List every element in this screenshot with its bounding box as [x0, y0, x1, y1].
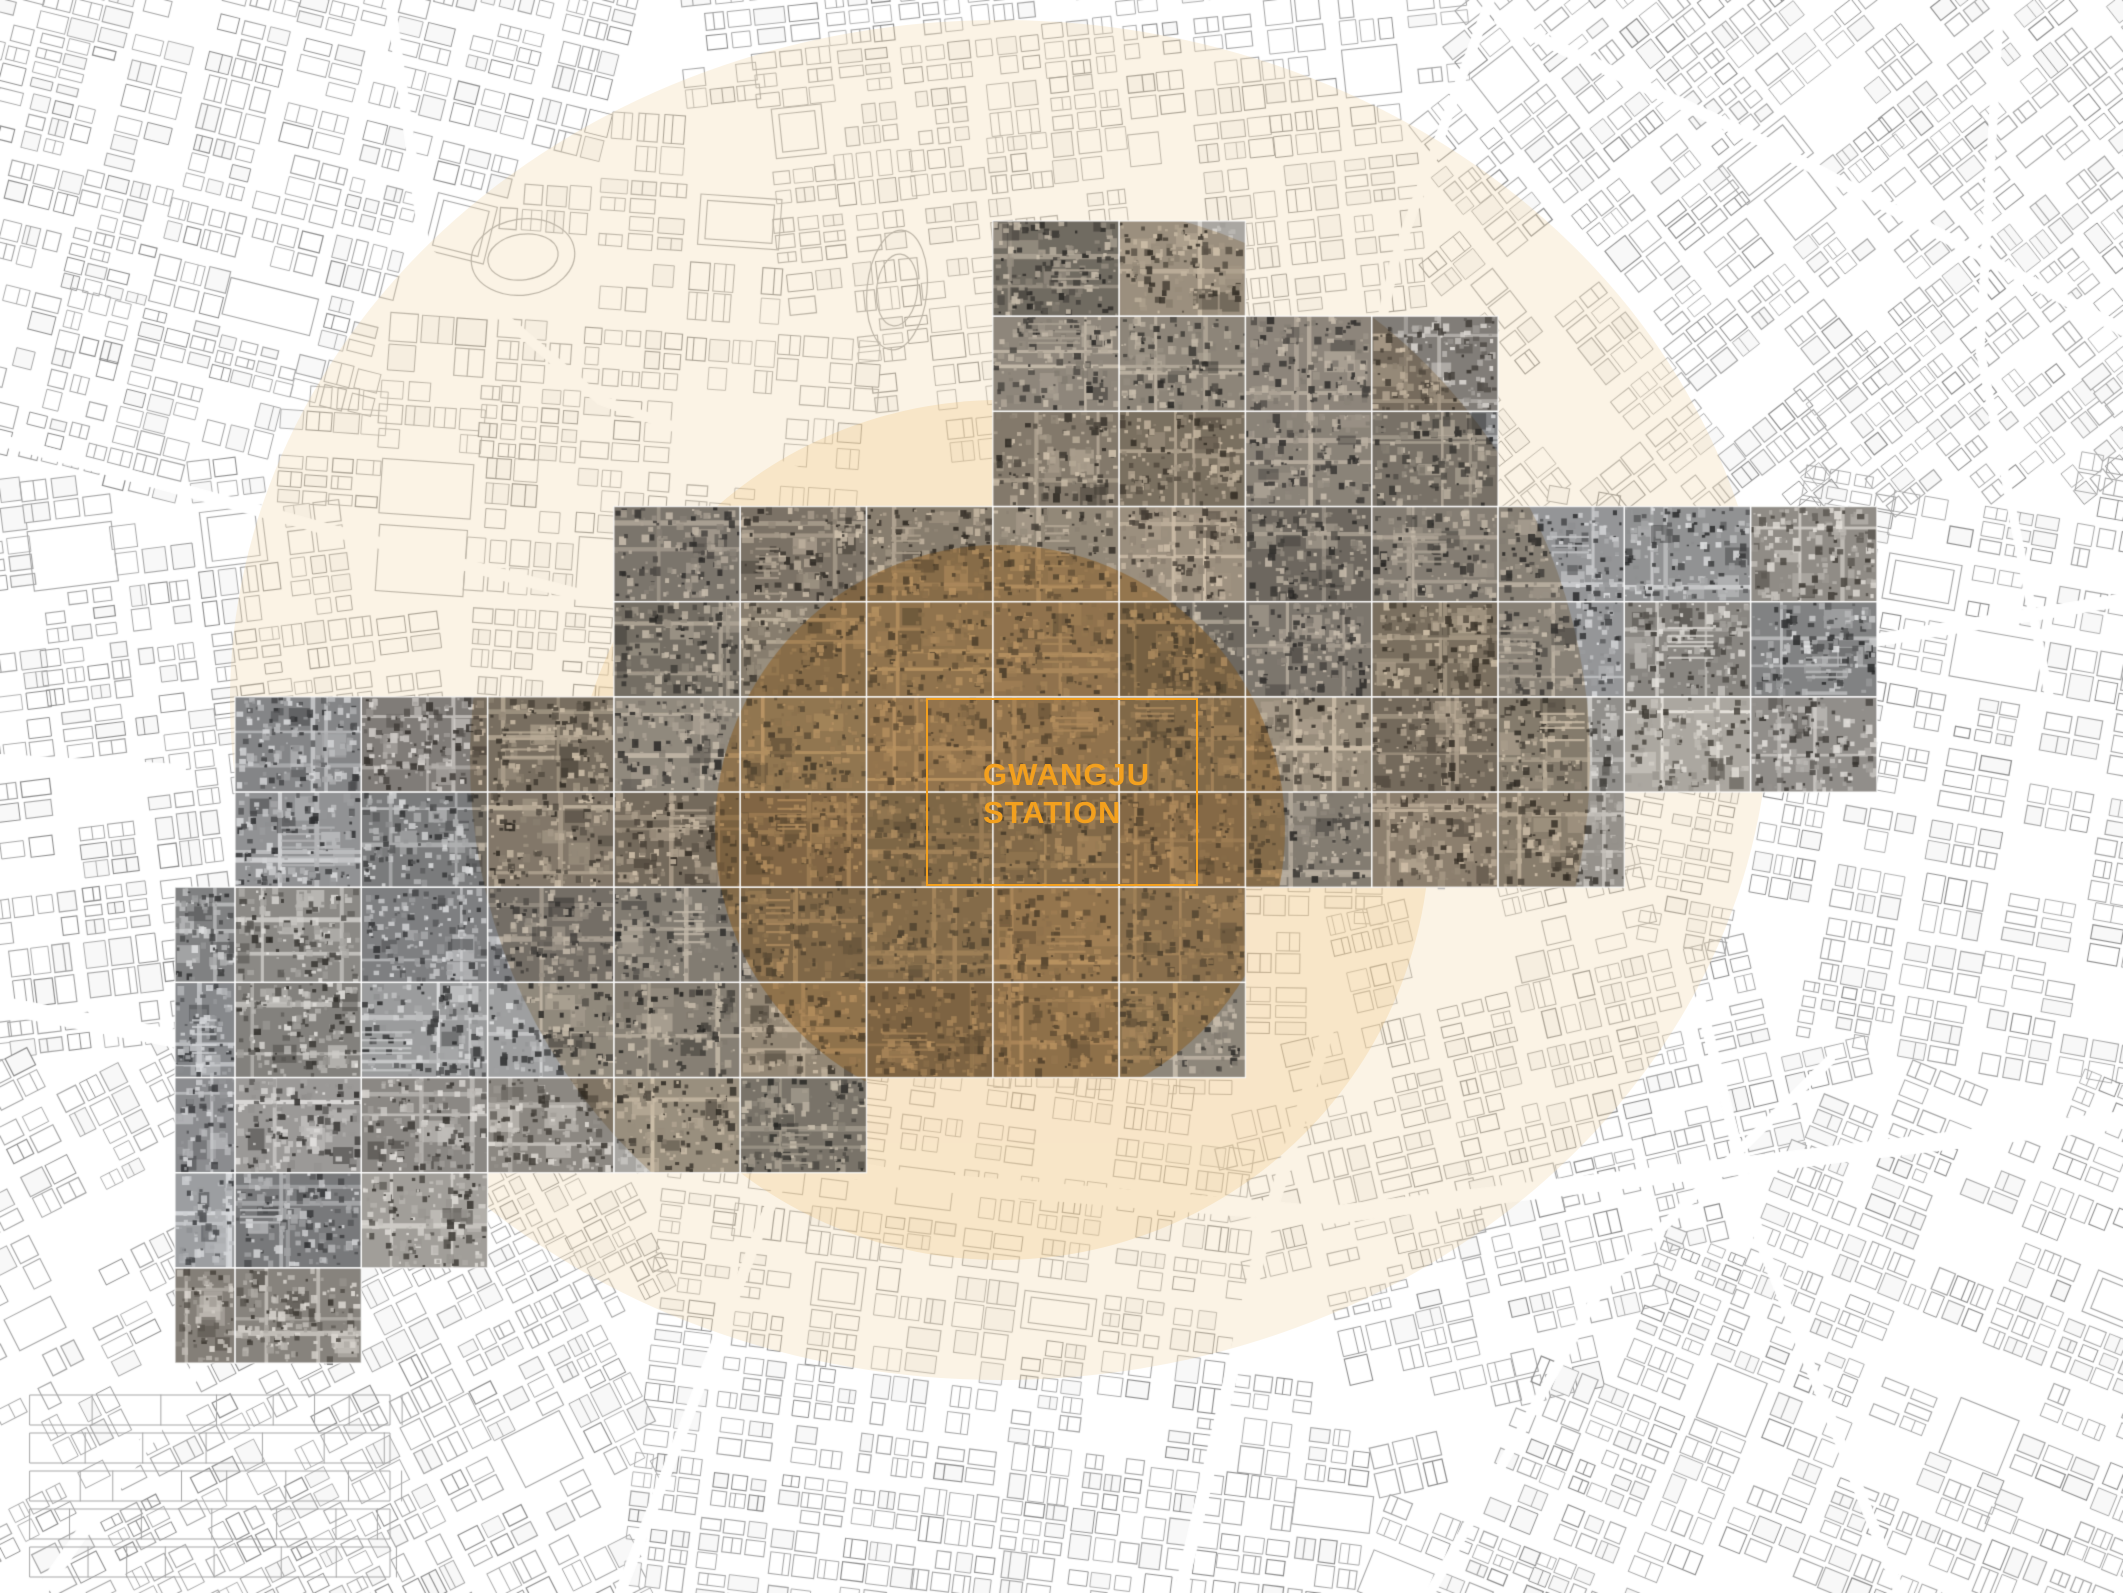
map-figure: GWANGJU STATION [0, 0, 2123, 1593]
station-label: GWANGJU STATION [983, 756, 1150, 832]
station-label-line1: GWANGJU [983, 756, 1150, 794]
station-label-line2: STATION [983, 794, 1150, 832]
